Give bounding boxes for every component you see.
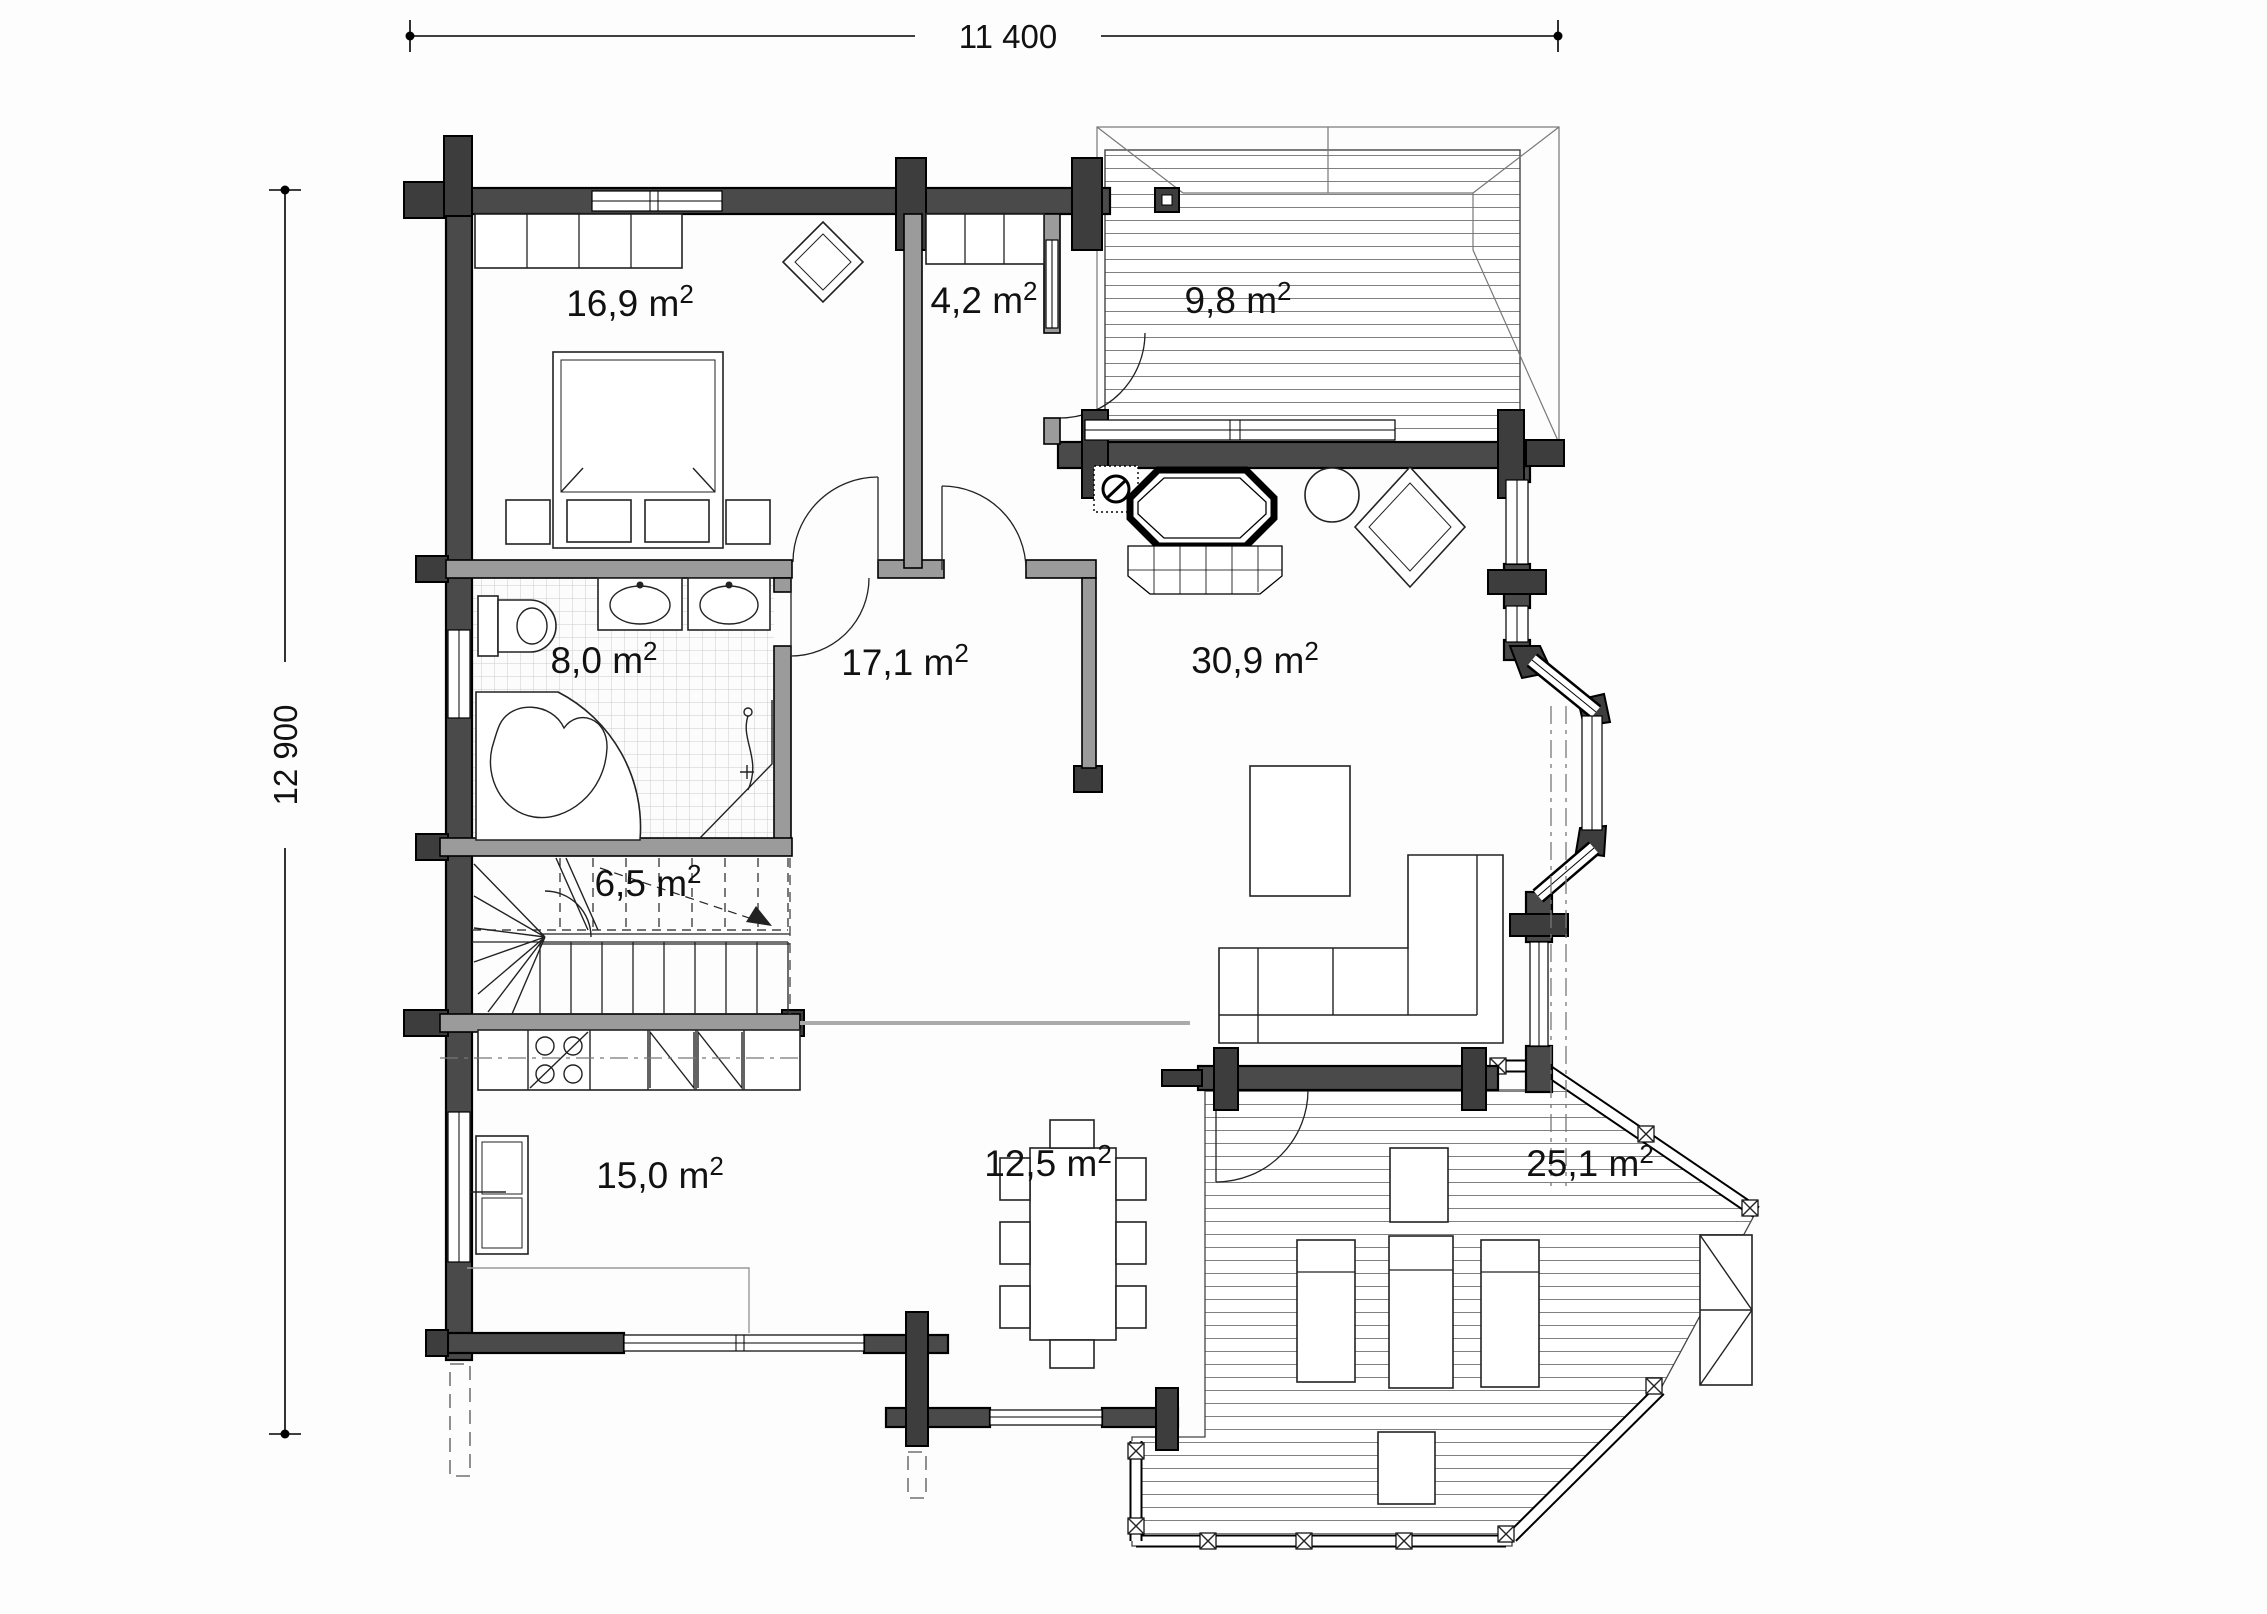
nightstand — [506, 500, 550, 544]
room-label-entry: 4,2 m2 — [930, 276, 1037, 321]
bedroom-door — [793, 477, 878, 562]
sun-lounger — [1481, 1240, 1539, 1387]
kitchen-counter — [478, 1030, 800, 1090]
deck-top-terrace — [1060, 127, 1559, 443]
window — [990, 1410, 1102, 1425]
stairs-direction-arrow — [746, 906, 772, 926]
corner-chair — [783, 222, 863, 302]
wall-bedroom-bath — [446, 560, 792, 578]
chair — [1116, 1158, 1146, 1200]
room-label-deck-bottom: 25,1 m2 — [1526, 1139, 1654, 1184]
wall-living-deck — [1198, 1066, 1498, 1090]
armchair — [1355, 467, 1465, 587]
dimension-width-label: 11 400 — [959, 18, 1057, 55]
nightstand — [726, 500, 770, 544]
porch-roof-edge — [467, 1268, 749, 1333]
kitchen-fittings — [440, 1030, 800, 1254]
wall-top — [410, 188, 1110, 214]
room-label-living: 30,9 m2 — [1191, 636, 1319, 681]
sun-lounger — [1297, 1240, 1355, 1382]
dimension-top: 11 400 — [406, 12, 1563, 58]
bedroom-furniture — [475, 214, 863, 548]
dimension-left: 12 900 — [262, 186, 308, 1439]
floor-plan: 11 400 12 900 16,9 m2 4,2 m2 9,8 m2 8,0 … — [0, 0, 2267, 1614]
window — [448, 1112, 470, 1262]
living-room-furniture — [1094, 466, 1503, 1043]
room-label-bathroom: 8,0 m2 — [550, 636, 657, 681]
coffee-table — [1250, 766, 1350, 896]
sink — [598, 578, 682, 630]
wall-hall-living — [1082, 578, 1096, 768]
side-table — [1305, 468, 1359, 522]
stairs-winder — [474, 864, 591, 1014]
deck-step-unit — [1700, 1235, 1752, 1385]
wall-bottom — [886, 1408, 990, 1427]
chair — [1050, 1340, 1094, 1368]
room-label-kitchen: 15,0 m2 — [596, 1151, 724, 1196]
toilet — [478, 596, 556, 656]
sink — [688, 578, 770, 630]
window — [592, 191, 722, 211]
window — [624, 1335, 864, 1351]
room-label-stairs: 6,5 m2 — [594, 859, 701, 904]
chair — [1000, 1286, 1030, 1328]
deck-bottom-terrace — [1128, 1058, 1758, 1549]
fireplace-stove — [1128, 470, 1282, 594]
dimension-height-label: 12 900 — [267, 705, 304, 806]
window — [1506, 480, 1528, 564]
wall-bedroom-entry — [904, 214, 922, 568]
deck-table — [1390, 1148, 1448, 1222]
entry-closet — [926, 214, 1044, 264]
wall-bath-hall — [774, 646, 791, 840]
floor-plan-canvas: 11 400 12 900 16,9 m2 4,2 m2 9,8 m2 8,0 … — [0, 0, 2267, 1614]
wall-living-top — [1058, 442, 1506, 468]
chair — [1116, 1222, 1146, 1264]
deck-table — [1378, 1432, 1435, 1504]
room-label-bedroom: 16,9 m2 — [566, 279, 694, 324]
window — [1506, 606, 1528, 642]
room-label-dining: 12,5 m2 — [984, 1139, 1112, 1184]
double-bed — [553, 352, 723, 548]
window — [1085, 420, 1395, 440]
chair — [1116, 1286, 1146, 1328]
deck-top-post — [1155, 188, 1179, 212]
entry-door — [942, 486, 1026, 570]
room-label-hall: 17,1 m2 — [841, 638, 969, 683]
sun-lounger — [1389, 1236, 1453, 1388]
window — [1046, 240, 1058, 328]
room-label-deck-top: 9,8 m2 — [1184, 276, 1291, 321]
chair — [1000, 1222, 1030, 1264]
stairs-lower-flight — [472, 942, 788, 1014]
roof-support-posts-dashed — [450, 1364, 926, 1498]
wardrobe — [475, 214, 682, 268]
sink-cabinet — [470, 1136, 528, 1254]
window — [448, 630, 470, 718]
wall-porch — [440, 1333, 624, 1353]
